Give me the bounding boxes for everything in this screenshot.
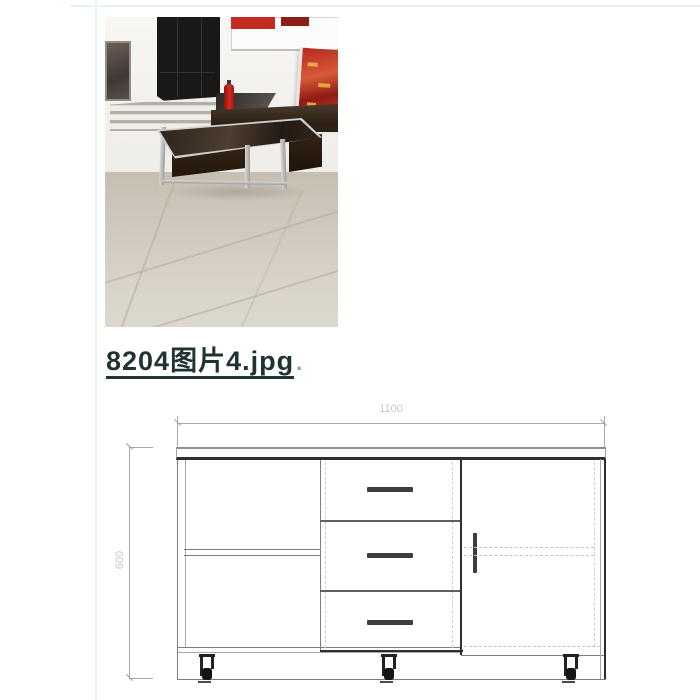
drawer-separator	[320, 520, 461, 522]
photo-wall-art	[105, 41, 131, 101]
cabinet-bottom-line2	[178, 652, 461, 653]
door-hidden-shelf-dashed	[464, 555, 594, 556]
table-grid-horizontal-line	[70, 5, 700, 7]
photo-red-banner-dark	[281, 17, 309, 26]
drawer-slide-dashed-line	[452, 462, 453, 648]
photo-red-banner	[231, 17, 275, 29]
photo-table-shadow	[163, 183, 313, 201]
photo-door-mullion	[201, 17, 202, 103]
width-dimension-line	[177, 423, 605, 424]
caster-wheel	[378, 654, 402, 684]
door-hinge-dashed-line	[594, 462, 595, 646]
door-left-edge	[460, 459, 462, 655]
photo-door-shadow	[208, 93, 276, 110]
dim-tick-top	[129, 447, 153, 448]
shelf-line	[184, 555, 320, 556]
door-bottom-dashed	[464, 646, 600, 647]
drawer-bottom-line	[320, 650, 463, 652]
drawer-handle	[367, 553, 413, 558]
photo-door-mullion	[177, 17, 178, 97]
photo-dark-doorway	[157, 17, 220, 109]
cabinet-right-edge	[604, 459, 606, 680]
caster-wheel	[196, 654, 220, 684]
cabinet-right-inner-edge	[600, 459, 601, 680]
attachment-filename-link[interactable]: 8204图片4.jpg	[106, 346, 294, 379]
drawer-handle	[367, 620, 413, 625]
dim-tick-bottom	[129, 678, 153, 679]
table-grid-vertical-line	[95, 0, 97, 700]
dim-extension-line	[604, 416, 605, 447]
filename-trailing-period: .	[296, 350, 302, 375]
drawer-separator	[320, 590, 461, 592]
drawer-section-divider	[320, 460, 321, 652]
caster-wheel	[560, 654, 584, 684]
drawer-handle	[367, 487, 413, 492]
page: 8204图片4.jpg. 1100 600	[0, 0, 700, 700]
shelf-line	[184, 549, 320, 550]
attachment-filename-row: 8204图片4.jpg.	[106, 339, 302, 378]
height-dimension-label: 600	[114, 540, 126, 580]
height-dimension-line	[129, 447, 130, 678]
drawer-slide-dashed-line	[325, 462, 326, 648]
attachment-photo[interactable]	[105, 17, 338, 327]
width-dimension-label: 1100	[368, 403, 414, 415]
photo-door-reflection	[160, 72, 215, 73]
door-bottom-line	[461, 655, 606, 656]
door-handle	[473, 533, 477, 573]
cabinet-left-inner-edge	[185, 460, 186, 648]
cabinet-top-panel	[176, 447, 606, 460]
photo-steps	[110, 97, 216, 131]
door-hidden-shelf-dashed	[464, 547, 594, 548]
